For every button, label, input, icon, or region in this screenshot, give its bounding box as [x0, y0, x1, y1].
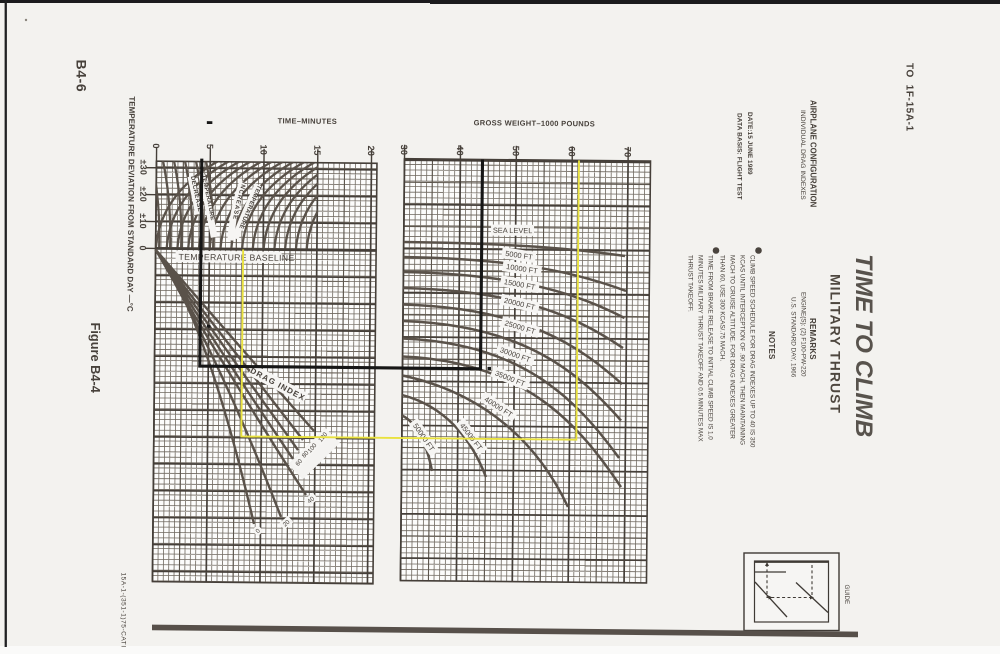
- svg-text:MINUTES MILITARY THRUST TAKEOF: MINUTES MILITARY THRUST TAKEOFF AND 0.5 …: [697, 255, 704, 442]
- svg-text:U.S. STANDARD DAY, 1966: U.S. STANDARD DAY, 1966: [790, 297, 797, 378]
- svg-text:THRUST TAKEOFF.: THRUST TAKEOFF.: [687, 255, 694, 312]
- svg-text:20: 20: [366, 145, 376, 156]
- svg-text:THAN 60, USE 300 KCAS/.75 MACH: THAN 60, USE 300 KCAS/.75 MACH.: [719, 255, 726, 361]
- svg-text:TO 1F-15A-1: TO 1F-15A-1: [904, 63, 915, 132]
- svg-text:MACH TO CRUISE ALTITUDE. FOR: MACH TO CRUISE ALTITUDE. FOR DRAG INDEXE…: [729, 255, 736, 439]
- svg-text:5: 5: [205, 144, 215, 149]
- svg-text:60: 60: [567, 146, 577, 157]
- svg-text:70: 70: [623, 147, 633, 158]
- svg-text:±20: ±20: [138, 186, 148, 202]
- svg-text:10: 10: [258, 144, 268, 155]
- svg-text:±10: ±10: [138, 213, 148, 229]
- svg-text:TIME–MINUTES: TIME–MINUTES: [278, 116, 338, 126]
- svg-text:GROSS WEIGHT–1000 POUNDS: GROSS WEIGHT–1000 POUNDS: [474, 118, 595, 128]
- svg-text:AIRPLANE CONFIGURATION: AIRPLANE CONFIGURATION: [809, 100, 818, 208]
- svg-text:SEA LEVEL: SEA LEVEL: [493, 226, 533, 235]
- svg-text:REMARKS: REMARKS: [808, 318, 817, 360]
- svg-text:B4-6: B4-6: [74, 60, 90, 93]
- svg-text:DATE:15 JUNE 1989: DATE:15 JUNE 1989: [746, 112, 753, 175]
- svg-text:TIME TO CLIMB: TIME TO CLIMB: [850, 254, 877, 437]
- svg-text:15: 15: [312, 145, 322, 156]
- svg-text:CLIMB SPEED SCHEDULE FOR DRAG: CLIMB SPEED SCHEDULE FOR DRAG INDEXES UP…: [749, 255, 756, 448]
- svg-text:INDIVIDUAL DRAG INDEXES: INDIVIDUAL DRAG INDEXES: [799, 110, 806, 200]
- svg-text:30: 30: [399, 145, 409, 156]
- svg-text:KCAS UNTIL INTERCEPTION OF .90: KCAS UNTIL INTERCEPTION OF .90 MACH, THE…: [739, 255, 746, 445]
- svg-text:0: 0: [151, 143, 161, 148]
- svg-text:0: 0: [138, 245, 148, 250]
- svg-text:±30: ±30: [138, 159, 148, 175]
- svg-text:Figure B4-4: Figure B4-4: [88, 323, 103, 394]
- svg-text:GUIDE: GUIDE: [843, 585, 850, 605]
- svg-text:50: 50: [511, 146, 521, 157]
- svg-text:ENGINE(S): (2) F100-PW-220: ENGINE(S): (2) F100-PW-220: [800, 292, 807, 377]
- svg-text:TIME FROM BRAKE RELEASE TO INI: TIME FROM BRAKE RELEASE TO INITIAL CLIMB…: [707, 255, 714, 440]
- svg-text:MILITARY THRUST: MILITARY THRUST: [828, 274, 844, 414]
- svg-text:TEMPERATURE BASELINE: TEMPERATURE BASELINE: [179, 252, 295, 263]
- svg-text:40: 40: [455, 145, 465, 156]
- svg-text:DATA BASIS: FLIGHT TEST: DATA BASIS: FLIGHT TEST: [736, 113, 743, 200]
- svg-text:15A-1-(351-1)75-CATI: 15A-1-(351-1)75-CATI: [119, 573, 126, 648]
- svg-text:NOTES: NOTES: [767, 331, 776, 360]
